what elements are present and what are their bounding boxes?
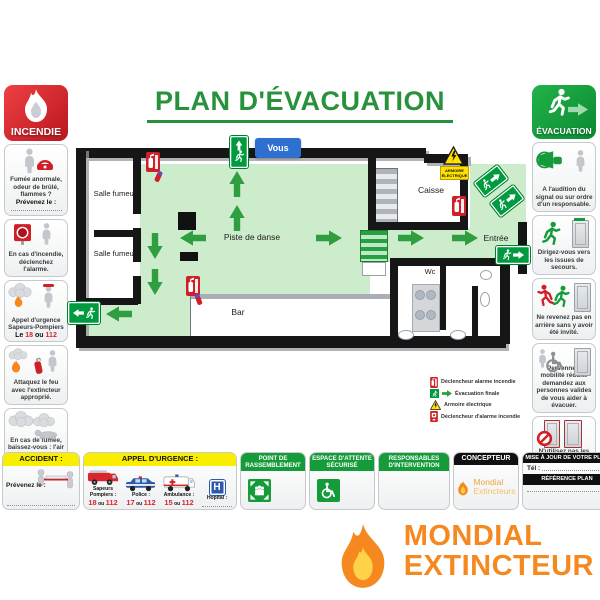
right-way-man-icon — [551, 285, 571, 309]
safe-waiting-panel: ESPACE D'ATTENTE SÉCURISÉ — [309, 452, 375, 510]
running-man-icon — [502, 249, 512, 261]
room-label-salle-fumeur-1: Salle fumeur — [90, 190, 140, 199]
wall-segment — [500, 264, 510, 344]
police-numbers: 17 ou 112 — [126, 498, 155, 507]
responders-panel: RESPONSABLES D'INTERVENTION — [378, 452, 450, 510]
prohibition-icon — [536, 430, 553, 447]
legend-row: Évacuation finale — [430, 389, 550, 399]
person-icon — [40, 222, 53, 246]
assembly-point-icon — [248, 479, 271, 502]
legend-row: Déclencheur alarme incendie — [430, 377, 550, 387]
police-column: Police : 17 ou 112 — [122, 466, 160, 509]
evacuation-badge-label: ÉVACUATION — [532, 126, 596, 136]
firemen-numbers: 18 ou 112 — [88, 498, 117, 507]
evacuation-plan-poster: PLAN D'ÉVACUATION INCENDIE Fumée anormal… — [0, 0, 600, 600]
incendie-panel-extinguish: Attaquez le feu avec l'extincteur approp… — [4, 345, 68, 405]
safe-waiting-body — [310, 471, 374, 509]
phone-row: Tél : — [523, 463, 600, 474]
elevator-door-icon — [564, 420, 582, 448]
toilet-icon — [480, 292, 490, 307]
phone-icon — [37, 158, 53, 171]
pmr-scene — [534, 346, 594, 365]
update-panel: MISE À JOUR DE VOTRE PLAN Tél : RÉFÉRENC… — [522, 452, 600, 510]
smoke-icon — [8, 348, 28, 360]
electrical-warning-icon — [443, 146, 464, 165]
accident-body: Prévenez le : — [3, 466, 79, 509]
arrow-right-icon — [442, 390, 452, 397]
walking-man-icon — [540, 221, 562, 247]
emergency-call-header: APPEL D'URGENCE : — [84, 453, 236, 466]
extinguish-scene — [6, 348, 66, 379]
running-man-icon — [432, 390, 438, 398]
exits-scene — [534, 218, 594, 249]
running-man-icon — [546, 88, 572, 118]
plan-legend: Déclencheur alarme incendie Évacuation f… — [430, 377, 550, 422]
wall-segment — [390, 258, 398, 344]
manual-call-point-icon — [430, 411, 438, 422]
designer-body: Mondial Extincteurs — [454, 465, 518, 509]
running-man-icon — [85, 307, 96, 320]
legend-row: Armoire électrique — [430, 400, 550, 410]
electrical-cabinet-label: ARMOIRE ÉLECTRIQUE — [440, 166, 469, 180]
write-in-line — [11, 207, 62, 211]
firemen-caption-1: Appel d'urgence — [10, 317, 61, 325]
exit-sign-left — [68, 302, 100, 324]
emergency-call-body: Sapeurs Pompiers : 18 ou 112 Police : 17… — [84, 466, 236, 509]
wall-segment — [76, 336, 506, 348]
green-staircase — [360, 230, 388, 262]
evacuation-panel-no-return: Ne revenez pas en arrière sans y avoir é… — [532, 278, 596, 340]
sidebar-incendie: INCENDIE Fumée anormale, odeur de brûlé,… — [4, 85, 68, 470]
toilet-icon — [450, 330, 466, 340]
wheelchair-icon — [320, 482, 337, 499]
exit-door-icon — [572, 220, 589, 248]
no-elevator-scene — [534, 419, 594, 448]
reference-header: RÉFÉRENCE PLAN — [523, 474, 600, 484]
flame-icon — [10, 359, 22, 374]
fire-helmet-icon — [43, 284, 54, 287]
alert-bold: Prévenez le : — [16, 199, 56, 206]
person-icon — [46, 349, 59, 373]
incendie-panel-alarm: En cas d'incendie, déclenchez l'alarme. — [4, 219, 68, 277]
fire-truck-icon — [87, 467, 119, 486]
extinguish-caption: Attaquez le feu avec l'extincteur approp… — [6, 379, 66, 402]
toilet-icon — [398, 330, 414, 340]
reference-row — [523, 485, 600, 494]
extinguisher-marker-icon — [430, 377, 438, 388]
fire-alarm-icon — [14, 224, 31, 245]
wall-segment — [472, 286, 478, 338]
alarm-caption: En cas d'incendie, déclenchez l'alarme. — [6, 251, 66, 274]
extinguisher-marker-icon — [452, 196, 466, 216]
phone-label: Tél : — [527, 465, 540, 472]
accident-panel: ACCIDENT : Prévenez le : — [2, 452, 80, 510]
title-area: PLAN D'ÉVACUATION — [0, 86, 600, 123]
ambulance-numbers: 15 ou 112 — [164, 498, 193, 507]
incendie-panel-alert: Fumée anormale, odeur de brûlé, flammes … — [4, 144, 68, 216]
number-18: 18 — [25, 332, 33, 339]
designer-brand: Mondial Extincteurs — [473, 478, 515, 497]
pillar — [180, 252, 198, 261]
you-are-here-marker: Vous — [255, 138, 301, 158]
exit-sign-bottom-right — [496, 246, 530, 264]
exit-sign-icon — [574, 218, 585, 221]
electrical-warning-icon — [430, 400, 441, 410]
brand-flame-icon — [332, 512, 394, 590]
emergency-numbers: Le 18 ou 112 — [15, 332, 57, 339]
no-return-caption: Ne revenez pas en arrière sans y avoir é… — [534, 314, 594, 337]
you-are-here-label: Vous — [267, 143, 288, 153]
extinguisher-marker-icon — [146, 152, 160, 172]
wall-segment — [94, 230, 141, 237]
assembly-point-header: POINT DE RASSEMBLEMENT — [241, 453, 305, 471]
room-label-salle-fumeur-2: Salle fumeur — [90, 250, 140, 259]
sink-icon — [415, 290, 425, 300]
responders-header: RESPONSABLES D'INTERVENTION — [379, 453, 449, 471]
crawl-scene — [6, 411, 66, 437]
evacuation-badge: ÉVACUATION — [532, 85, 596, 139]
room-label-wc: Wc — [416, 268, 444, 277]
incendie-badge: INCENDIE — [4, 85, 68, 141]
write-in-line — [542, 466, 600, 471]
person-icon — [574, 149, 587, 173]
smoke-icon — [32, 413, 56, 427]
wall-segment — [368, 222, 468, 230]
alarm-scene — [6, 222, 66, 251]
update-header: MISE À JOUR DE VOTRE PLAN — [523, 453, 600, 463]
landing-step — [362, 262, 386, 276]
brand-name: MONDIAL EXTINCTEUR — [404, 521, 594, 581]
door-icon — [574, 348, 591, 376]
exit-sign-icon — [430, 389, 439, 398]
arrow-up-icon — [236, 140, 243, 150]
ambulance-column: Ambulance : 15 ou 112 — [160, 466, 198, 509]
legend-row: Déclencheur d'alarme incendie — [430, 412, 550, 422]
brand-logo: MONDIAL EXTINCTEUR — [332, 512, 594, 590]
running-man-icon — [234, 150, 245, 163]
door-icon — [574, 283, 591, 312]
assembly-point-panel: POINT DE RASSEMBLEMENT — [240, 452, 306, 510]
ambulance-icon — [163, 473, 195, 492]
brand-flame-icon — [456, 478, 470, 496]
exits-caption: Dirigez-vous vers les issues de secours. — [534, 249, 594, 272]
megaphone-icon — [536, 151, 564, 171]
firemen-column: Sapeurs Pompiers : 18 ou 112 — [84, 466, 122, 509]
wall-segment — [368, 154, 376, 230]
hospital-sign-icon: H — [210, 480, 225, 495]
floor-plan: Salle fumeur Salle fumeur Piste de danse… — [68, 134, 534, 380]
no-return-scene — [534, 281, 594, 314]
firemen-scene — [6, 283, 66, 317]
room-label-entree: Entrée — [472, 234, 520, 244]
signal-caption: A l'audition du signal ou sur ordre d'un… — [534, 186, 594, 209]
firefighter-figure — [42, 285, 55, 309]
police-car-icon — [125, 474, 157, 492]
room-label-piste: Piste de danse — [208, 233, 296, 243]
smoke-icon — [7, 411, 35, 427]
arrow-right-icon — [513, 251, 524, 259]
toilet-icon — [480, 270, 492, 280]
accident-header: ACCIDENT : — [3, 453, 79, 466]
pillar — [178, 212, 196, 230]
sink-icon — [426, 290, 436, 300]
write-in-line — [527, 487, 600, 492]
alert-scene — [6, 147, 66, 176]
wheelchair-area-icon — [317, 479, 340, 502]
designer-panel: CONCEPTEUR Mondial Extincteurs — [453, 452, 519, 510]
sink-icon — [415, 310, 425, 320]
responders-body — [379, 471, 449, 509]
exit-sign-top — [230, 136, 248, 168]
safe-waiting-header: ESPACE D'ATTENTE SÉCURISÉ — [310, 453, 374, 471]
firemen-caption-2: Sapeurs-Pompiers — [7, 324, 65, 332]
update-body: Tél : RÉFÉRENCE PLAN — [523, 463, 600, 509]
flame-icon — [20, 88, 52, 124]
wheelchair-icon — [544, 351, 566, 373]
designer-header: CONCEPTEUR — [454, 453, 518, 465]
room-label-bar: Bar — [198, 308, 278, 318]
incendie-panel-firemen: Appel d'urgence Sapeurs-Pompiers Le 18 o… — [4, 280, 68, 342]
wall-segment — [133, 158, 141, 214]
incendie-badge-label: INCENDIE — [4, 126, 68, 138]
evacuation-panel-signal: A l'audition du signal ou sur ordre d'un… — [532, 142, 596, 212]
extinguisher-icon — [31, 355, 45, 376]
brand-line-1: MONDIAL — [404, 521, 594, 551]
write-in-line — [7, 505, 75, 506]
accident-bold: Prévenez le : — [6, 482, 46, 489]
write-in-line — [202, 501, 232, 507]
assembly-point-body — [241, 471, 305, 509]
sink-icon — [426, 310, 436, 320]
arrow-left-icon — [73, 309, 84, 317]
bottom-panels: ACCIDENT : Prévenez le : APPEL D'URGENCE… — [2, 452, 600, 510]
flame-icon — [13, 295, 24, 308]
hospital-column: H Hopital : — [198, 466, 236, 509]
room-label-caisse: Caisse — [404, 186, 458, 196]
person-icon — [22, 148, 37, 174]
emergency-call-panel: APPEL D'URGENCE : Sapeurs Pompiers : 18 … — [83, 452, 237, 510]
alert-caption: Fumée anormale, odeur de brûlé, flammes … — [6, 176, 66, 199]
wall-segment — [390, 258, 510, 266]
bar-counter — [190, 294, 392, 342]
brand-line-2: EXTINCTEUR — [404, 551, 594, 581]
crawling-person-figure — [34, 427, 60, 439]
evacuation-panel-exits: Dirigez-vous vers les issues de secours. — [532, 215, 596, 275]
page-title: PLAN D'ÉVACUATION — [147, 86, 453, 123]
signal-scene — [534, 145, 594, 186]
number-112: 112 — [46, 332, 57, 339]
